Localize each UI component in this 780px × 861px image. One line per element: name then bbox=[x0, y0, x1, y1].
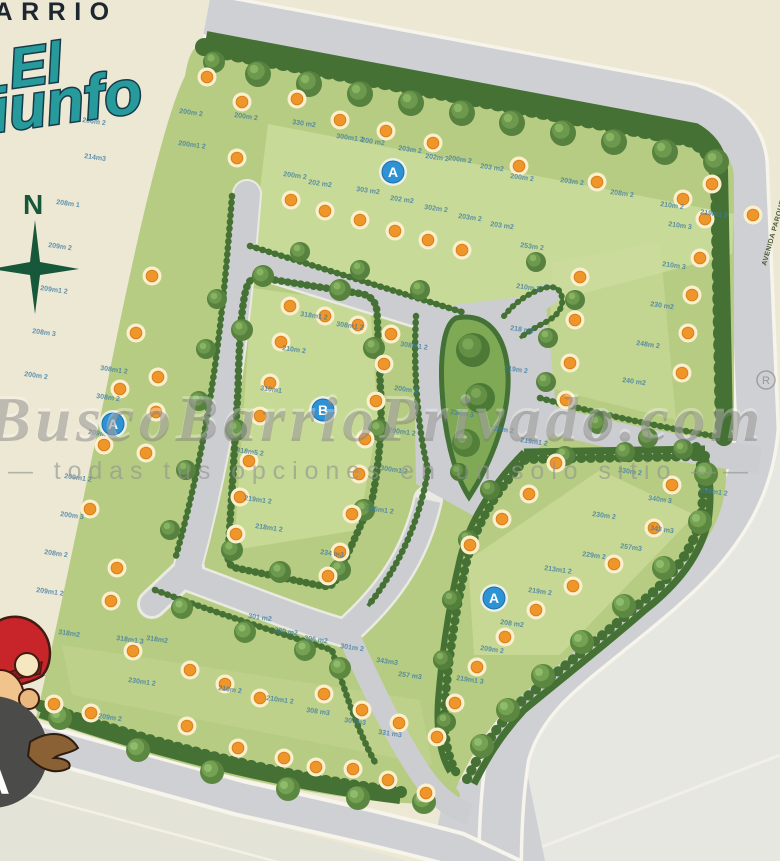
svg-text:R: R bbox=[762, 375, 770, 387]
svg-text:N: N bbox=[23, 189, 43, 220]
svg-text:BARRIO: BARRIO bbox=[0, 0, 118, 26]
svg-text:— todas tus opciones en u: — todas tus opciones en un solo sitio —— bbox=[8, 457, 748, 485]
svg-text:A: A bbox=[388, 164, 398, 180]
svg-text:A: A bbox=[0, 749, 10, 805]
svg-text:A: A bbox=[489, 590, 499, 606]
svg-text:BuscoBarrioPrivado.com: BuscoBarrioPrivado.com bbox=[0, 384, 760, 455]
